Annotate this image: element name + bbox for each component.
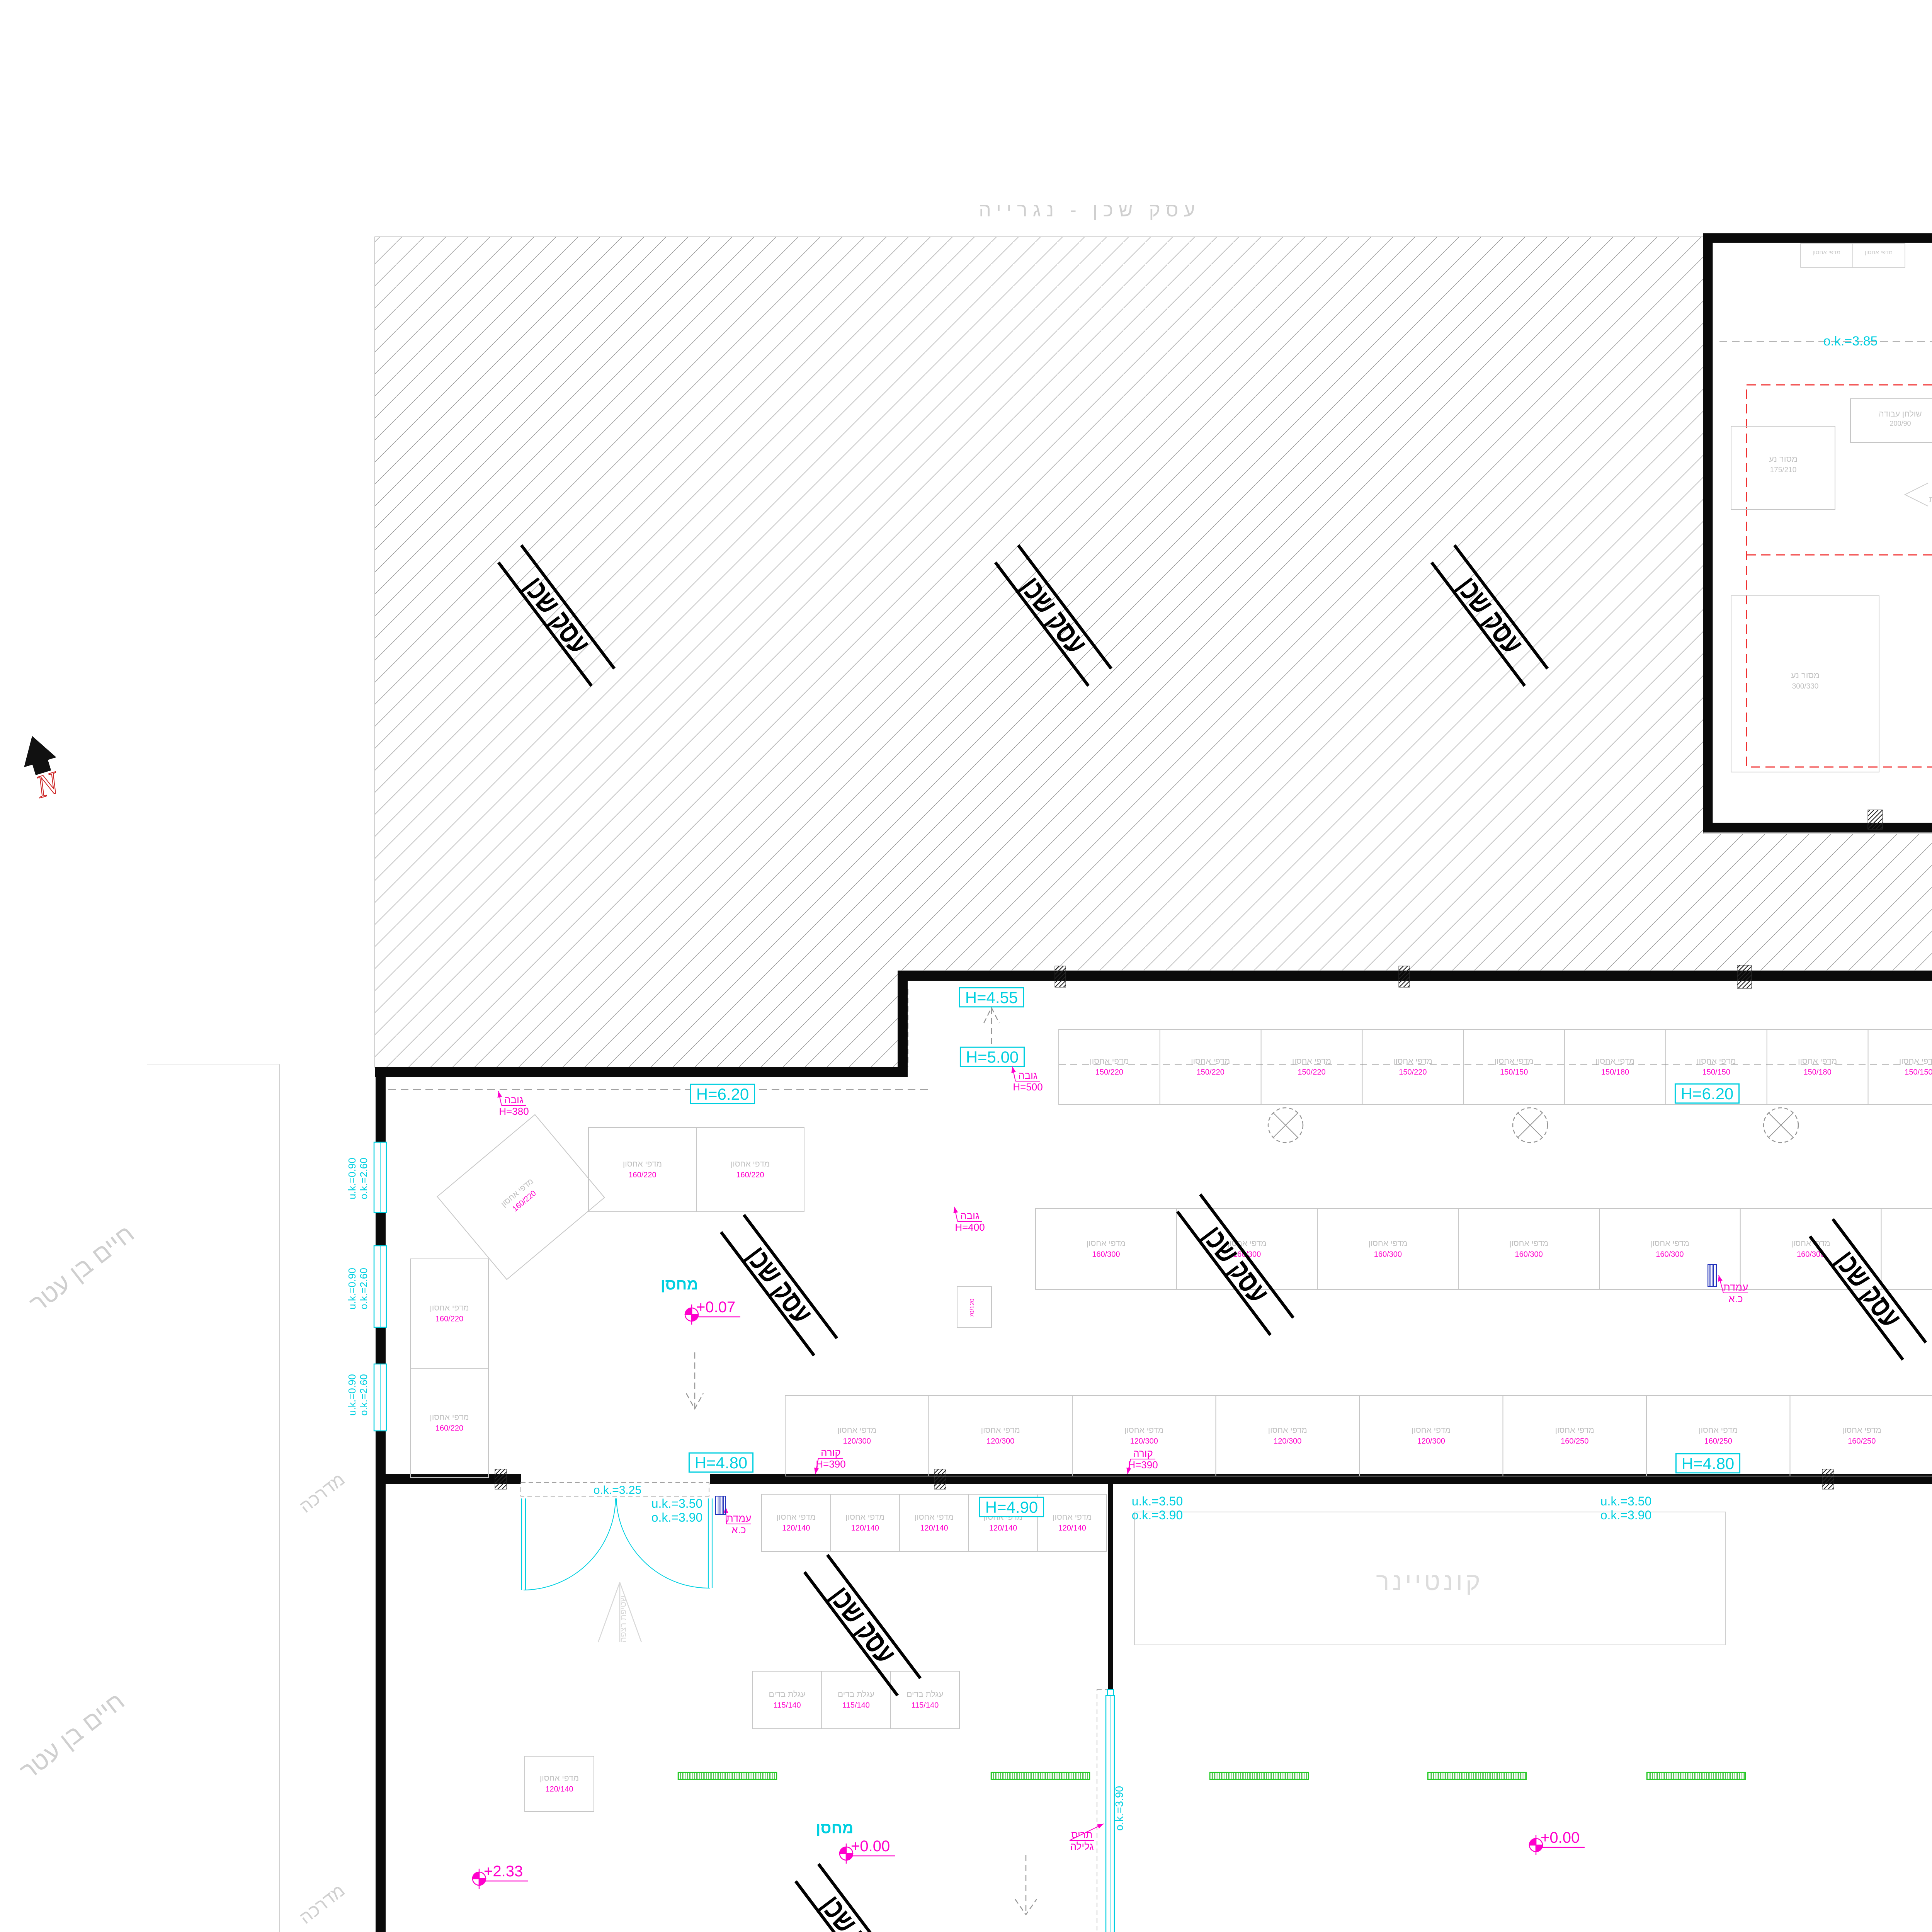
- svg-text:160/250: 160/250: [1561, 1437, 1588, 1446]
- svg-text:120/300: 120/300: [843, 1437, 871, 1446]
- svg-text:115/140: 115/140: [911, 1701, 939, 1710]
- svg-text:גלילה: גלילה: [1070, 1840, 1094, 1852]
- svg-text:H=390: H=390: [816, 1458, 845, 1470]
- svg-text:H=5.00: H=5.00: [966, 1048, 1019, 1066]
- svg-text:70/120: 70/120: [969, 1298, 976, 1317]
- svg-text:מדפי אחסון: מדפי אחסון: [1268, 1426, 1307, 1435]
- svg-text:o.k.=2.60: o.k.=2.60: [358, 1268, 369, 1310]
- svg-text:o.k.=2.60: o.k.=2.60: [358, 1158, 369, 1199]
- svg-text:H=6.20: H=6.20: [696, 1085, 749, 1103]
- svg-text:מדפי אחסון: מדפי אחסון: [845, 1513, 884, 1522]
- svg-text:+0.00: +0.00: [851, 1838, 890, 1855]
- svg-text:120/140: 120/140: [1058, 1524, 1086, 1532]
- svg-text:150/150: 150/150: [1702, 1068, 1730, 1077]
- svg-text:מדפי אחסון: מדפי אחסון: [1842, 1426, 1881, 1435]
- svg-text:160/300: 160/300: [1374, 1250, 1402, 1259]
- svg-text:+0.00: +0.00: [1541, 1829, 1580, 1846]
- svg-text:מדפי אחסון: מדפי אחסון: [623, 1160, 662, 1168]
- svg-text:u.k.=0.90: u.k.=0.90: [346, 1268, 358, 1310]
- svg-text:120/140: 120/140: [545, 1785, 573, 1794]
- svg-text:120/140: 120/140: [920, 1524, 948, 1532]
- svg-text:u.k.=0.90: u.k.=0.90: [346, 1374, 358, 1416]
- svg-text:מדפי אחסון: מדפי אחסון: [540, 1774, 579, 1783]
- svg-text:160/300: 160/300: [1515, 1250, 1543, 1259]
- svg-text:160/250: 160/250: [1848, 1437, 1876, 1446]
- svg-text:גובה: גובה: [960, 1210, 980, 1221]
- svg-text:160/220: 160/220: [435, 1315, 463, 1323]
- svg-text:קורה: קורה: [821, 1447, 841, 1458]
- svg-text:o.k.=3.90: o.k.=3.90: [1132, 1508, 1183, 1522]
- svg-text:מדפי אחסון: מדפי אחסון: [1865, 249, 1893, 256]
- svg-text:o.k.=3.90: o.k.=3.90: [1113, 1786, 1125, 1831]
- svg-text:מדפי אחסון: מדפי אחסון: [1124, 1426, 1163, 1435]
- svg-text:מדפי אחסון: מדפי אחסון: [981, 1426, 1020, 1435]
- svg-text:H=400: H=400: [955, 1221, 985, 1233]
- svg-text:מדפי אחסון: מדפי אחסון: [1650, 1239, 1689, 1248]
- svg-text:עמדת: עמדת: [1723, 1281, 1748, 1293]
- svg-text:H=6.20: H=6.20: [1681, 1085, 1734, 1103]
- svg-text:מדפי אחסון: מדפי אחסון: [1087, 1239, 1126, 1248]
- svg-text:115/140: 115/140: [774, 1701, 801, 1710]
- svg-text:u.k.=3.50: u.k.=3.50: [1132, 1494, 1183, 1508]
- svg-text:u.k.=3.50: u.k.=3.50: [1600, 1494, 1652, 1508]
- svg-text:מדפי אחסון: מדפי אחסון: [731, 1160, 770, 1168]
- svg-text:150/220: 150/220: [1197, 1068, 1225, 1077]
- svg-text:H=390: H=390: [1128, 1459, 1158, 1471]
- svg-text:כ.א: כ.א: [731, 1524, 746, 1536]
- svg-text:מדפי אחסון: מדפי אחסון: [777, 1513, 816, 1522]
- svg-text:120/140: 120/140: [782, 1524, 810, 1532]
- svg-text:150/150: 150/150: [1500, 1068, 1528, 1077]
- svg-text:H=380: H=380: [499, 1105, 529, 1117]
- svg-text:160/220: 160/220: [628, 1171, 656, 1179]
- svg-text:עגלת בדים: עגלת בדים: [906, 1690, 943, 1699]
- svg-text:150/180: 150/180: [1601, 1068, 1629, 1077]
- svg-text:מדפי אחסון: מדפי אחסון: [430, 1413, 469, 1422]
- svg-text:120/140: 120/140: [989, 1524, 1017, 1532]
- svg-text:160/220: 160/220: [435, 1424, 463, 1433]
- svg-text:o.k.=3.90: o.k.=3.90: [1600, 1508, 1652, 1522]
- svg-text:150/180: 150/180: [1803, 1068, 1831, 1077]
- svg-text:מדפי אחסון: מדפי אחסון: [1791, 1239, 1830, 1248]
- svg-text:קורה: קורה: [1133, 1447, 1153, 1459]
- svg-text:עגלת בדים: עגלת בדים: [769, 1690, 806, 1699]
- svg-text:160/220: 160/220: [736, 1171, 764, 1179]
- svg-text:175/210: 175/210: [1770, 466, 1797, 474]
- svg-text:120/300: 120/300: [1130, 1437, 1158, 1446]
- svg-text:מדפי אחסון: מדפי אחסון: [1509, 1239, 1548, 1248]
- svg-text:+2.33: +2.33: [484, 1863, 523, 1880]
- svg-text:מדפי אחסון: מדפי אחסון: [1555, 1426, 1594, 1435]
- svg-text:מדפי אחסון: מדפי אחסון: [837, 1426, 876, 1435]
- svg-text:150/220: 150/220: [1095, 1068, 1123, 1077]
- svg-text:+0.07: +0.07: [696, 1299, 735, 1316]
- svg-text:מחסן: מחסן: [660, 1276, 698, 1293]
- svg-text:200/90: 200/90: [1889, 420, 1911, 427]
- svg-text:מדפי אחסון: מדפי אחסון: [1412, 1426, 1451, 1435]
- svg-text:o.k.=3.25: o.k.=3.25: [594, 1484, 641, 1497]
- svg-text:מסור נע: מסור נע: [1791, 670, 1820, 680]
- svg-text:קונטיינר: קונטיינר: [1376, 1568, 1483, 1595]
- svg-text:160/300: 160/300: [1092, 1250, 1120, 1259]
- svg-text:כ.א: כ.א: [1728, 1293, 1743, 1304]
- svg-text:o.k.=3.90: o.k.=3.90: [651, 1510, 703, 1524]
- svg-text:H=4.80: H=4.80: [695, 1454, 748, 1472]
- svg-text:מדפי אחסון: מדפי אחסון: [1899, 1057, 1932, 1066]
- svg-text:מדפי אחסון: מדפי אחסון: [1368, 1239, 1407, 1248]
- svg-text:מדפי אחסון: מדפי אחסון: [1292, 1057, 1331, 1066]
- svg-text:150/220: 150/220: [1399, 1068, 1427, 1077]
- svg-text:מדפי אחסון: מדפי אחסון: [1699, 1426, 1738, 1435]
- svg-text:160/300: 160/300: [1656, 1250, 1684, 1259]
- svg-text:u.k.=3.50: u.k.=3.50: [651, 1497, 703, 1510]
- svg-text:מסור נע: מסור נע: [1769, 454, 1798, 464]
- svg-text:o.k.=3.85: o.k.=3.85: [1823, 334, 1878, 349]
- svg-text:120/140: 120/140: [851, 1524, 879, 1532]
- svg-text:120/300: 120/300: [1274, 1437, 1301, 1446]
- svg-text:H=4.55: H=4.55: [965, 988, 1018, 1007]
- svg-text:עמדת: עמדת: [726, 1512, 752, 1524]
- svg-text:H=500: H=500: [1013, 1081, 1043, 1093]
- svg-text:H=4.90: H=4.90: [985, 1498, 1038, 1516]
- svg-text:שטיפת רצפה: שטיפת רצפה: [618, 1595, 628, 1643]
- svg-text:u.k.=0.90: u.k.=0.90: [346, 1158, 358, 1199]
- svg-text:מדפי אחסון: מדפי אחסון: [430, 1304, 469, 1313]
- svg-text:רצפה משופעת: רצפה משופעת: [1929, 495, 1932, 504]
- svg-text:גובה: גובה: [1018, 1070, 1037, 1081]
- svg-text:H=4.80: H=4.80: [1682, 1454, 1735, 1473]
- svg-text:300/330: 300/330: [1792, 682, 1819, 690]
- svg-text:120/300: 120/300: [1417, 1437, 1445, 1446]
- svg-text:160/250: 160/250: [1704, 1437, 1732, 1446]
- svg-text:o.k.=2.60: o.k.=2.60: [358, 1374, 369, 1416]
- svg-text:גובה: גובה: [504, 1094, 524, 1105]
- svg-text:מחסן: מחסן: [816, 1820, 853, 1837]
- svg-text:150/150: 150/150: [1905, 1068, 1932, 1077]
- svg-text:115/140: 115/140: [842, 1701, 870, 1710]
- svg-text:עגלת בדים: עגלת בדים: [838, 1690, 874, 1699]
- svg-text:150/220: 150/220: [1298, 1068, 1325, 1077]
- svg-text:מדפי אחסון: מדפי אחסון: [915, 1513, 954, 1522]
- svg-text:שולחן עבודה: שולחן עבודה: [1879, 410, 1922, 418]
- svg-text:מדפי אחסון: מדפי אחסון: [1813, 249, 1840, 256]
- svg-text:מדפי אחסון: מדפי אחסון: [1053, 1513, 1092, 1522]
- svg-text:120/300: 120/300: [986, 1437, 1014, 1446]
- svg-text:עסק שכן - נגרייה: עסק שכן - נגרייה: [979, 199, 1200, 221]
